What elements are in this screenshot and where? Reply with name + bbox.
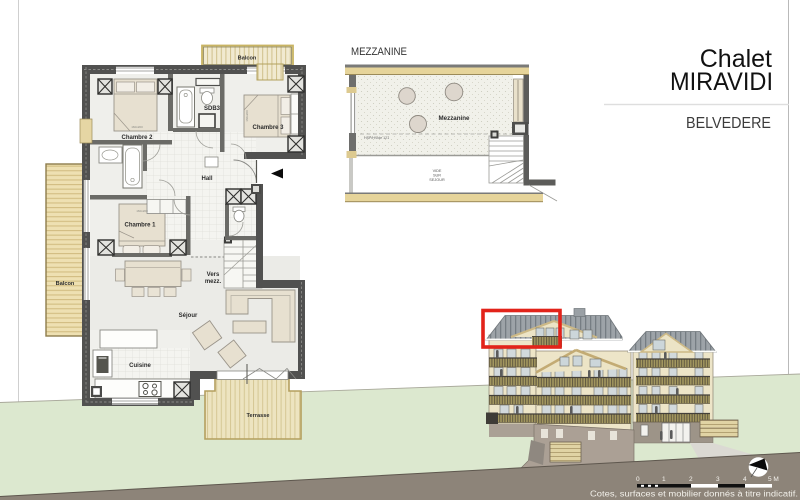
svg-text:Balcon: Balcon <box>238 56 257 62</box>
svg-text:5 M: 5 M <box>768 476 779 483</box>
svg-text:Balcon: Balcon <box>56 281 75 287</box>
svg-text:1: 1 <box>662 476 666 483</box>
svg-text:Chambre 3: Chambre 3 <box>252 125 284 131</box>
svg-text:4: 4 <box>743 476 747 483</box>
svg-text:3: 3 <box>716 476 720 483</box>
svg-text:MEZZANINE: MEZZANINE <box>351 46 407 58</box>
svg-text:Chambre 1: Chambre 1 <box>124 223 156 229</box>
svg-text:160x200: 160x200 <box>136 209 148 213</box>
svg-text:SEJOUR: SEJOUR <box>429 178 445 182</box>
svg-text:2: 2 <box>689 476 693 483</box>
svg-text:160x200: 160x200 <box>245 110 249 122</box>
svg-text:Chambre 2: Chambre 2 <box>121 135 153 141</box>
svg-text:SUR: SUR <box>433 174 441 178</box>
svg-text:Séjour: Séjour <box>179 313 198 319</box>
svg-text:Vers: Vers <box>207 272 220 278</box>
svg-text:VIDE: VIDE <box>433 169 442 173</box>
svg-text:mezz.: mezz. <box>205 279 222 285</box>
svg-text:Hall: Hall <box>201 176 212 182</box>
svg-text:SDB3: SDB3 <box>204 106 221 112</box>
svg-text:HSP/HVide 121: HSP/HVide 121 <box>364 136 389 140</box>
svg-text:BELVEDERE: BELVEDERE <box>686 115 771 132</box>
svg-text:Cuisine: Cuisine <box>129 363 151 369</box>
svg-text:160x200: 160x200 <box>131 125 143 129</box>
svg-text:MIRAVIDI: MIRAVIDI <box>670 68 773 96</box>
svg-text:Terrasse: Terrasse <box>247 413 270 419</box>
svg-text:Mezzanine: Mezzanine <box>439 115 471 122</box>
svg-text:0: 0 <box>636 476 640 483</box>
svg-text:Cotes, surfaces et mobilier do: Cotes, surfaces et mobilier donnés à tit… <box>590 489 798 499</box>
